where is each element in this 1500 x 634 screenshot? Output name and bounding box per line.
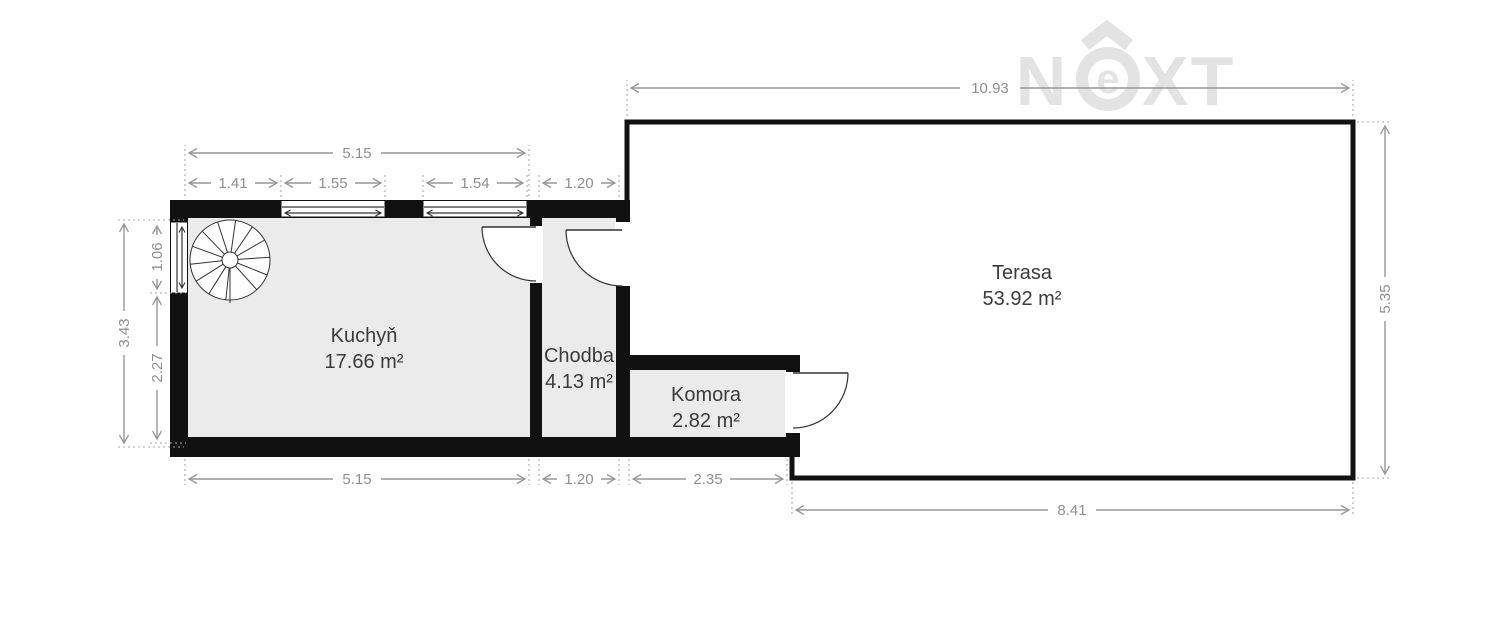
logo-letter-n: N [1016, 42, 1067, 120]
svg-text:8.41: 8.41 [1057, 502, 1086, 519]
floor-plan: N e X T [0, 0, 1500, 634]
svg-text:2.27: 2.27 [149, 353, 166, 382]
svg-text:3.43: 3.43 [116, 318, 133, 347]
svg-text:5.35: 5.35 [1377, 284, 1394, 313]
svg-text:10.93: 10.93 [971, 80, 1009, 97]
wall-top [170, 200, 630, 218]
svg-text:1.20: 1.20 [564, 471, 593, 488]
svg-text:2.35: 2.35 [693, 471, 722, 488]
room-area: 53.92 m² [983, 288, 1062, 310]
logo-letter-e: e [1096, 55, 1119, 102]
logo-letter-t: T [1191, 42, 1234, 120]
room-area: 17.66 m² [325, 351, 404, 373]
svg-text:1.06: 1.06 [149, 242, 166, 271]
wall-pantry-top [616, 355, 800, 370]
wall-bottom [170, 437, 800, 457]
svg-text:1.41: 1.41 [218, 175, 247, 192]
room-name: Kuchyň [331, 325, 398, 347]
svg-text:1.55: 1.55 [318, 175, 347, 192]
logo-letter-x: X [1142, 42, 1189, 120]
room-name: Terasa [992, 262, 1053, 284]
window-symbol-left [171, 222, 188, 293]
room-name: Komora [671, 384, 742, 406]
room-area: 2.82 m² [672, 410, 740, 432]
room-name: Chodba [544, 345, 615, 367]
svg-text:1.20: 1.20 [564, 175, 593, 192]
window-symbol-top-left [281, 201, 385, 218]
window-symbol-top-right [423, 201, 527, 218]
svg-text:1.54: 1.54 [460, 175, 489, 192]
room-area: 4.13 m² [545, 371, 613, 393]
svg-text:5.15: 5.15 [342, 145, 371, 162]
svg-text:5.15: 5.15 [342, 471, 371, 488]
